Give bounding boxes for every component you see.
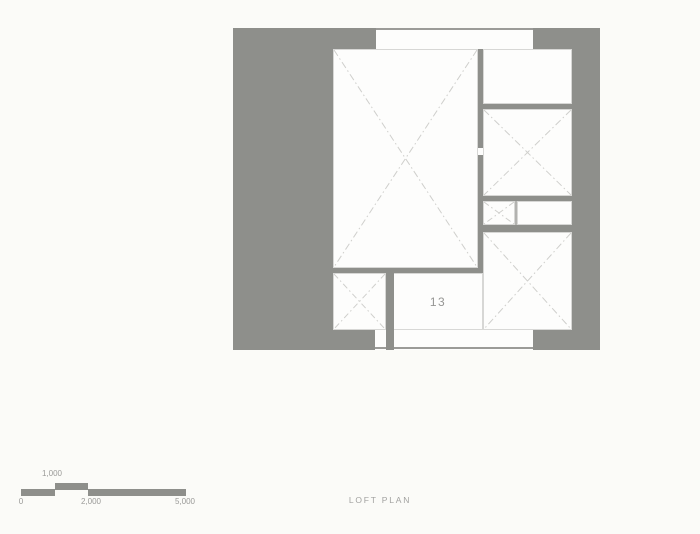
- drawing-sheet: 13 1,000 0 2,000 5,000 LOFT PLAN: [0, 0, 700, 534]
- wall-band-left: [233, 28, 333, 350]
- diagonal-cross-icon: [334, 274, 385, 329]
- scale-segment-1000-2000: [55, 483, 88, 490]
- wall-band-right: [572, 28, 600, 350]
- lower-rooms-baseline: [394, 329, 572, 330]
- scale-segment-2000-5000: [88, 489, 186, 496]
- room-13: 13: [394, 273, 483, 330]
- scale-label-2000: 2,000: [66, 497, 116, 506]
- wall-band-top-left: [333, 28, 376, 49]
- room-number-label: 13: [394, 274, 482, 329]
- shaft-box: [483, 201, 515, 225]
- diagonal-cross-icon: [484, 233, 571, 329]
- diagonal-cross-icon: [484, 110, 571, 195]
- opening-line-top: [376, 28, 533, 30]
- room-lower-right: [483, 232, 572, 330]
- wall-band-bottom-left: [333, 330, 375, 350]
- room-upper-right: [483, 49, 572, 104]
- room-small-lower-left: [333, 273, 386, 330]
- closet-box: [517, 201, 572, 225]
- wall-right-c-d: [483, 225, 572, 232]
- room-main: [333, 49, 478, 268]
- scale-label-0: 0: [6, 497, 36, 506]
- diagonal-cross-icon: [334, 50, 477, 267]
- scale-label-5000: 5,000: [160, 497, 210, 506]
- plan-caption: LOFT PLAN: [330, 495, 430, 505]
- scale-label-1000: 1,000: [27, 469, 77, 478]
- scale-segment-0-1000: [21, 489, 55, 496]
- opening-line-bottom: [375, 347, 533, 349]
- diagonal-cross-icon: [484, 202, 514, 224]
- wall-smallroom-right: [386, 273, 394, 350]
- room-middle-right: [483, 109, 572, 196]
- wall-band-bottom-right: [533, 330, 600, 350]
- loft-floor-plan: 13: [233, 28, 600, 350]
